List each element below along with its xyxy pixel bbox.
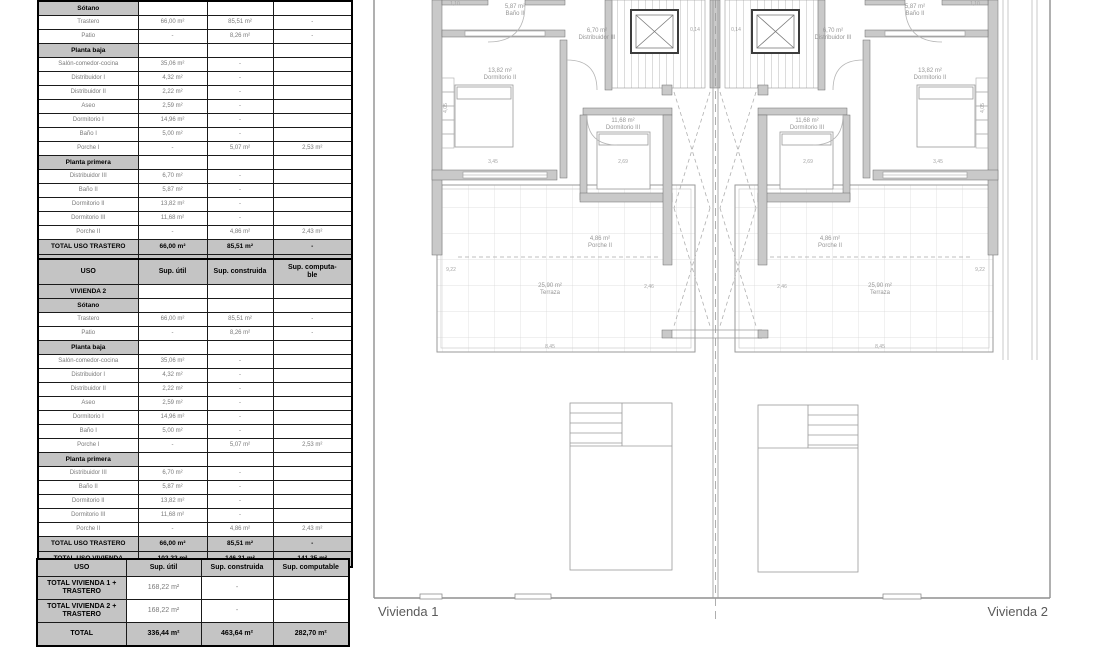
dim-label: 2,69	[618, 159, 628, 165]
value-cell: 4,86 m²	[207, 523, 273, 537]
data-row: Distribuidor I4,32 m²-	[38, 369, 352, 383]
value-cell: 2,43 m²	[273, 226, 352, 240]
column-header: USO	[38, 259, 138, 285]
value-cell: 85,51 m²	[207, 240, 273, 255]
column-header: Sup. construida	[207, 259, 273, 285]
value-cell: 11,68 m²	[138, 212, 207, 226]
value-cell: 2,59 m²	[138, 397, 207, 411]
row-label-cell: Planta baja	[38, 341, 138, 355]
value-cell: -	[207, 481, 273, 495]
value-cell	[273, 600, 349, 623]
value-cell: -	[207, 58, 273, 72]
room-label: Porche II	[818, 243, 842, 249]
row-label-cell: Porche I	[38, 439, 138, 453]
row-label-cell: Dormitorio I	[38, 411, 138, 425]
data-row: Trastero66,00 m²85,51 m²-	[38, 16, 352, 30]
vivienda2-caption: Vivienda 2	[988, 604, 1048, 619]
value-cell: 66,00 m²	[138, 313, 207, 327]
data-row: Distribuidor III6,70 m²-	[38, 170, 352, 184]
value-cell	[138, 1, 207, 16]
room-label: Dormitorio II	[484, 75, 517, 81]
room-label: 11,68 m²	[611, 118, 634, 124]
data-row: Distribuidor I4,32 m²-	[38, 72, 352, 86]
data-row: Baño I5,00 m²-	[38, 128, 352, 142]
value-cell: 5,07 m²	[207, 439, 273, 453]
dim-label: 4,05	[443, 103, 449, 113]
data-row: Aseo2,59 m²-	[38, 397, 352, 411]
value-cell	[273, 577, 349, 600]
section-row: Sótano	[38, 1, 352, 16]
value-cell	[207, 285, 273, 299]
value-cell: 2,53 m²	[273, 142, 352, 156]
row-label-cell: Planta baja	[38, 44, 138, 58]
row-label-cell: Planta primera	[38, 453, 138, 467]
room-label: Dormitorio II	[914, 75, 947, 81]
section-row: Planta baja	[38, 44, 352, 58]
vivienda1-areas-table: SótanoTrastero66,00 m²85,51 m²-Patio-8,2…	[37, 0, 353, 271]
value-cell: -	[201, 577, 273, 600]
terrace-right	[735, 185, 993, 352]
dim-label: 9,22	[446, 267, 456, 273]
row-label-cell: Distribuidor I	[38, 72, 138, 86]
data-row: Porche II-4,86 m²2,43 m²	[38, 226, 352, 240]
value-cell: 35,06 m²	[138, 58, 207, 72]
center-wall	[710, 0, 720, 88]
row-label-cell: TOTAL VIVIENDA 1 + TRASTERO	[37, 577, 126, 600]
value-cell: 85,51 m²	[207, 537, 273, 552]
row-label-cell: TOTAL USO TRASTERO	[38, 240, 138, 255]
vivienda1-caption: Vivienda 1	[378, 604, 438, 619]
dim-label: 4,05	[980, 103, 986, 113]
section-row: Planta primera	[38, 453, 352, 467]
side-walls-right	[1003, 0, 1037, 360]
value-cell: -	[273, 327, 352, 341]
data-row: Baño I5,00 m²-	[38, 425, 352, 439]
data-row: Porche II-4,86 m²2,43 m²	[38, 523, 352, 537]
value-cell: 11,68 m²	[138, 509, 207, 523]
dim-label: 0,14	[731, 27, 741, 33]
value-cell: 13,82 m²	[138, 495, 207, 509]
room-label: 25,90 m²	[538, 283, 562, 289]
value-cell	[273, 184, 352, 198]
room-label: 4,86 m²	[820, 236, 840, 242]
column-header: Sup. computable	[273, 559, 349, 577]
value-cell	[273, 509, 352, 523]
data-row: Dormitorio I14,96 m²-	[38, 114, 352, 128]
value-cell	[273, 467, 352, 481]
room-label: 13,82 m²	[488, 68, 512, 74]
row-label-cell: Porche I	[38, 142, 138, 156]
data-row: Dormitorio II13,82 m²-	[38, 495, 352, 509]
row-label-cell: TOTAL USO TRASTERO	[38, 537, 138, 552]
value-cell: 85,51 m²	[207, 16, 273, 30]
value-cell	[273, 495, 352, 509]
value-cell	[273, 355, 352, 369]
total-row: TOTAL USO TRASTERO66,00 m²85,51 m²-	[38, 537, 352, 552]
value-cell	[273, 411, 352, 425]
value-cell	[138, 341, 207, 355]
value-cell: 6,70 m²	[138, 170, 207, 184]
value-cell	[273, 156, 352, 170]
room-label: Porche II	[588, 243, 612, 249]
row-label-cell: Baño II	[38, 184, 138, 198]
value-cell	[273, 425, 352, 439]
data-row: Trastero66,00 m²85,51 m²-	[38, 313, 352, 327]
column-header: Sup. útil	[126, 559, 201, 577]
data-row: Salón-comedor-cocina35,06 m²-	[38, 355, 352, 369]
value-cell: -	[207, 128, 273, 142]
column-header: Sup. construida	[201, 559, 273, 577]
value-cell: -	[207, 495, 273, 509]
room-label: Distribuidor III	[578, 35, 615, 41]
value-cell	[273, 341, 352, 355]
value-cell: 85,51 m²	[207, 313, 273, 327]
value-cell	[207, 44, 273, 58]
room-label: Terraza	[870, 290, 891, 296]
data-row: Dormitorio II13,82 m²-	[38, 198, 352, 212]
value-cell: 168,22 m²	[126, 577, 201, 600]
value-cell: 2,53 m²	[273, 439, 352, 453]
row-label-cell: Baño I	[38, 128, 138, 142]
dim-label: 0,14	[690, 27, 700, 33]
dim-label: 3,45	[933, 159, 943, 165]
row-label-cell: TOTAL VIVIENDA 2 + TRASTERO	[37, 600, 126, 623]
value-cell	[273, 453, 352, 467]
row-label-cell: Dormitorio II	[38, 495, 138, 509]
dim-label: 3,45	[488, 159, 498, 165]
data-row: Patio-8,26 m²-	[38, 327, 352, 341]
value-cell: -	[273, 16, 352, 30]
value-cell	[273, 114, 352, 128]
value-cell: 4,32 m²	[138, 369, 207, 383]
value-cell: -	[273, 30, 352, 44]
row-label-cell: Dormitorio III	[38, 509, 138, 523]
row-label-cell: Distribuidor I	[38, 369, 138, 383]
row-label-cell: Sótano	[38, 299, 138, 313]
dim-label: 9,22	[975, 267, 985, 273]
row-label-cell: Aseo	[38, 100, 138, 114]
row-label-cell: Patio	[38, 327, 138, 341]
value-cell: -	[207, 86, 273, 100]
section-row: VIVIENDA 2	[38, 285, 352, 299]
value-cell: -	[207, 72, 273, 86]
value-cell: -	[273, 537, 352, 552]
room-label: 25,90 m²	[868, 283, 892, 289]
value-cell: -	[207, 467, 273, 481]
row-label-cell: Trastero	[38, 16, 138, 30]
value-cell: 2,43 m²	[273, 523, 352, 537]
value-cell: -	[138, 226, 207, 240]
value-cell: 14,96 m²	[138, 411, 207, 425]
value-cell: -	[207, 411, 273, 425]
row-label-cell: Planta primera	[38, 156, 138, 170]
row-label-cell: Distribuidor III	[38, 170, 138, 184]
row-label-cell: VIVIENDA 2	[38, 285, 138, 299]
data-row: Distribuidor II2,22 m²-	[38, 86, 352, 100]
column-header: Sup. útil	[138, 259, 207, 285]
value-cell: -	[273, 313, 352, 327]
value-cell	[273, 86, 352, 100]
value-cell	[273, 369, 352, 383]
room-label: 4,86 m²	[590, 236, 610, 242]
room-label: 11,68 m²	[795, 118, 818, 124]
data-row: Porche I-5,07 m²2,53 m²	[38, 142, 352, 156]
pool-right	[758, 405, 858, 572]
rowhead-row: TOTAL VIVIENDA 1 + TRASTERO168,22 m²-	[37, 577, 349, 600]
value-cell: -	[207, 100, 273, 114]
value-cell	[273, 72, 352, 86]
row-label-cell: Dormitorio I	[38, 114, 138, 128]
dim-label: 8,45	[875, 344, 885, 350]
value-cell: 2,22 m²	[138, 383, 207, 397]
data-row: Baño II5,87 m²-	[38, 184, 352, 198]
value-cell	[273, 1, 352, 16]
row-label-cell: Baño I	[38, 425, 138, 439]
data-row: Salón-comedor-cocina35,06 m²-	[38, 58, 352, 72]
value-cell: 66,00 m²	[138, 537, 207, 552]
dim-label: 1,10	[450, 1, 460, 7]
row-label-cell: Dormitorio II	[38, 198, 138, 212]
value-cell: -	[207, 355, 273, 369]
value-cell: -	[138, 142, 207, 156]
value-cell: 282,70 m²	[273, 623, 349, 647]
row-label-cell: Trastero	[38, 313, 138, 327]
row-label-cell: Porche II	[38, 226, 138, 240]
room-label: Baño II	[505, 11, 524, 17]
value-cell: 66,00 m²	[138, 240, 207, 255]
dim-label: 2,46	[777, 284, 787, 290]
value-cell	[273, 100, 352, 114]
room-label: 5,87 m²	[905, 4, 925, 10]
row-label-cell: Porche II	[38, 523, 138, 537]
value-cell	[138, 285, 207, 299]
row-label-cell: Baño II	[38, 481, 138, 495]
section-row: Sótano	[38, 299, 352, 313]
elevator-left-icon	[631, 10, 678, 53]
column-header: Sup. computa- ble	[273, 259, 352, 285]
value-cell: -	[207, 198, 273, 212]
value-cell	[207, 299, 273, 313]
value-cell: 4,32 m²	[138, 72, 207, 86]
room-label: 6,70 m²	[823, 28, 843, 34]
value-cell	[138, 44, 207, 58]
table-header-row: USOSup. útilSup. construidaSup. computa-…	[38, 259, 352, 285]
value-cell: 5,87 m²	[138, 481, 207, 495]
pool-left	[570, 403, 672, 570]
value-cell	[273, 44, 352, 58]
value-cell	[138, 299, 207, 313]
value-cell	[273, 212, 352, 226]
row-label-cell: Salón-comedor-cocina	[38, 355, 138, 369]
section-row: Planta baja	[38, 341, 352, 355]
value-cell	[273, 198, 352, 212]
room-label: Dormitorio III	[790, 125, 825, 131]
value-cell: 66,00 m²	[138, 16, 207, 30]
value-cell: -	[207, 369, 273, 383]
row-label-cell: Salón-comedor-cocina	[38, 58, 138, 72]
closets	[442, 78, 988, 148]
value-cell: 8,26 m²	[207, 327, 273, 341]
value-cell: -	[207, 212, 273, 226]
terrace-left	[437, 185, 695, 352]
value-cell: 2,22 m²	[138, 86, 207, 100]
dim-label: 2,46	[644, 284, 654, 290]
section-row: Planta primera	[38, 156, 352, 170]
row-label-cell: Aseo	[38, 397, 138, 411]
data-row: Baño II5,87 m²-	[38, 481, 352, 495]
row-label-cell: Distribuidor II	[38, 86, 138, 100]
row-label-cell: Dormitorio III	[38, 212, 138, 226]
value-cell: -	[207, 383, 273, 397]
value-cell: 8,26 m²	[207, 30, 273, 44]
value-cell: 5,07 m²	[207, 142, 273, 156]
value-cell: -	[207, 397, 273, 411]
value-cell: 168,22 m²	[126, 600, 201, 623]
row-label-cell: TOTAL	[37, 623, 126, 647]
value-cell	[273, 397, 352, 411]
dim-label: 8,45	[545, 344, 555, 350]
floor-plan-drawing: 5,87 m² Baño II 6,70 m² Distribuidor III…	[365, 0, 1110, 626]
total-row: TOTAL USO TRASTERO66,00 m²85,51 m²-	[38, 240, 352, 255]
value-cell	[273, 58, 352, 72]
value-cell: 2,59 m²	[138, 100, 207, 114]
value-cell	[207, 156, 273, 170]
dim-label: 2,69	[803, 159, 813, 165]
value-cell	[207, 341, 273, 355]
value-cell	[273, 128, 352, 142]
value-cell	[138, 453, 207, 467]
value-cell: -	[273, 240, 352, 255]
value-cell	[273, 481, 352, 495]
data-row: Porche I-5,07 m²2,53 m²	[38, 439, 352, 453]
data-row: Aseo2,59 m²-	[38, 100, 352, 114]
room-label: Terraza	[540, 290, 561, 296]
total-row: TOTAL336,44 m²463,64 m²282,70 m²	[37, 623, 349, 647]
data-row: Distribuidor II2,22 m²-	[38, 383, 352, 397]
value-cell: -	[201, 600, 273, 623]
row-label-cell: Distribuidor III	[38, 467, 138, 481]
data-row: Dormitorio III11,68 m²-	[38, 509, 352, 523]
value-cell: 35,06 m²	[138, 355, 207, 369]
value-cell	[138, 156, 207, 170]
rowhead-row: TOTAL VIVIENDA 2 + TRASTERO168,22 m²-	[37, 600, 349, 623]
value-cell: 6,70 m²	[138, 467, 207, 481]
value-cell: -	[138, 30, 207, 44]
value-cell: 5,00 m²	[138, 425, 207, 439]
value-cell: -	[138, 327, 207, 341]
row-label-cell: Patio	[38, 30, 138, 44]
value-cell	[273, 285, 352, 299]
column-header: USO	[37, 559, 126, 577]
room-label: Baño II	[905, 11, 924, 17]
totals-summary-table: USOSup. útilSup. construidaSup. computab…	[36, 558, 350, 647]
value-cell: -	[207, 425, 273, 439]
value-cell	[207, 453, 273, 467]
table-header-row: USOSup. útilSup. construidaSup. computab…	[37, 559, 349, 577]
value-cell: -	[207, 170, 273, 184]
value-cell	[273, 170, 352, 184]
data-row: Distribuidor III6,70 m²-	[38, 467, 352, 481]
elevator-right-icon	[752, 10, 799, 53]
room-label: Dormitorio III	[606, 125, 641, 131]
data-row: Patio-8,26 m²-	[38, 30, 352, 44]
value-cell: -	[207, 184, 273, 198]
value-cell: 463,64 m²	[201, 623, 273, 647]
room-label: 6,70 m²	[587, 28, 607, 34]
value-cell: 13,82 m²	[138, 198, 207, 212]
value-cell: -	[207, 114, 273, 128]
value-cell: -	[138, 439, 207, 453]
data-row: Dormitorio III11,68 m²-	[38, 212, 352, 226]
value-cell: 5,87 m²	[138, 184, 207, 198]
data-row: Dormitorio I14,96 m²-	[38, 411, 352, 425]
room-label: 5,87 m²	[505, 4, 525, 10]
value-cell	[273, 299, 352, 313]
row-label-cell: Distribuidor II	[38, 383, 138, 397]
value-cell: 14,96 m²	[138, 114, 207, 128]
value-cell: 5,00 m²	[138, 128, 207, 142]
value-cell: -	[138, 523, 207, 537]
value-cell	[273, 383, 352, 397]
value-cell: -	[207, 509, 273, 523]
vivienda2-areas-table: USOSup. útilSup. construidaSup. computa-…	[37, 258, 353, 568]
room-label: Distribuidor III	[814, 35, 851, 41]
value-cell: 336,44 m²	[126, 623, 201, 647]
value-cell	[207, 1, 273, 16]
row-label-cell: Sótano	[38, 1, 138, 16]
value-cell: 4,86 m²	[207, 226, 273, 240]
room-label: 13,82 m²	[918, 68, 942, 74]
dim-label: 1,10	[970, 1, 980, 7]
